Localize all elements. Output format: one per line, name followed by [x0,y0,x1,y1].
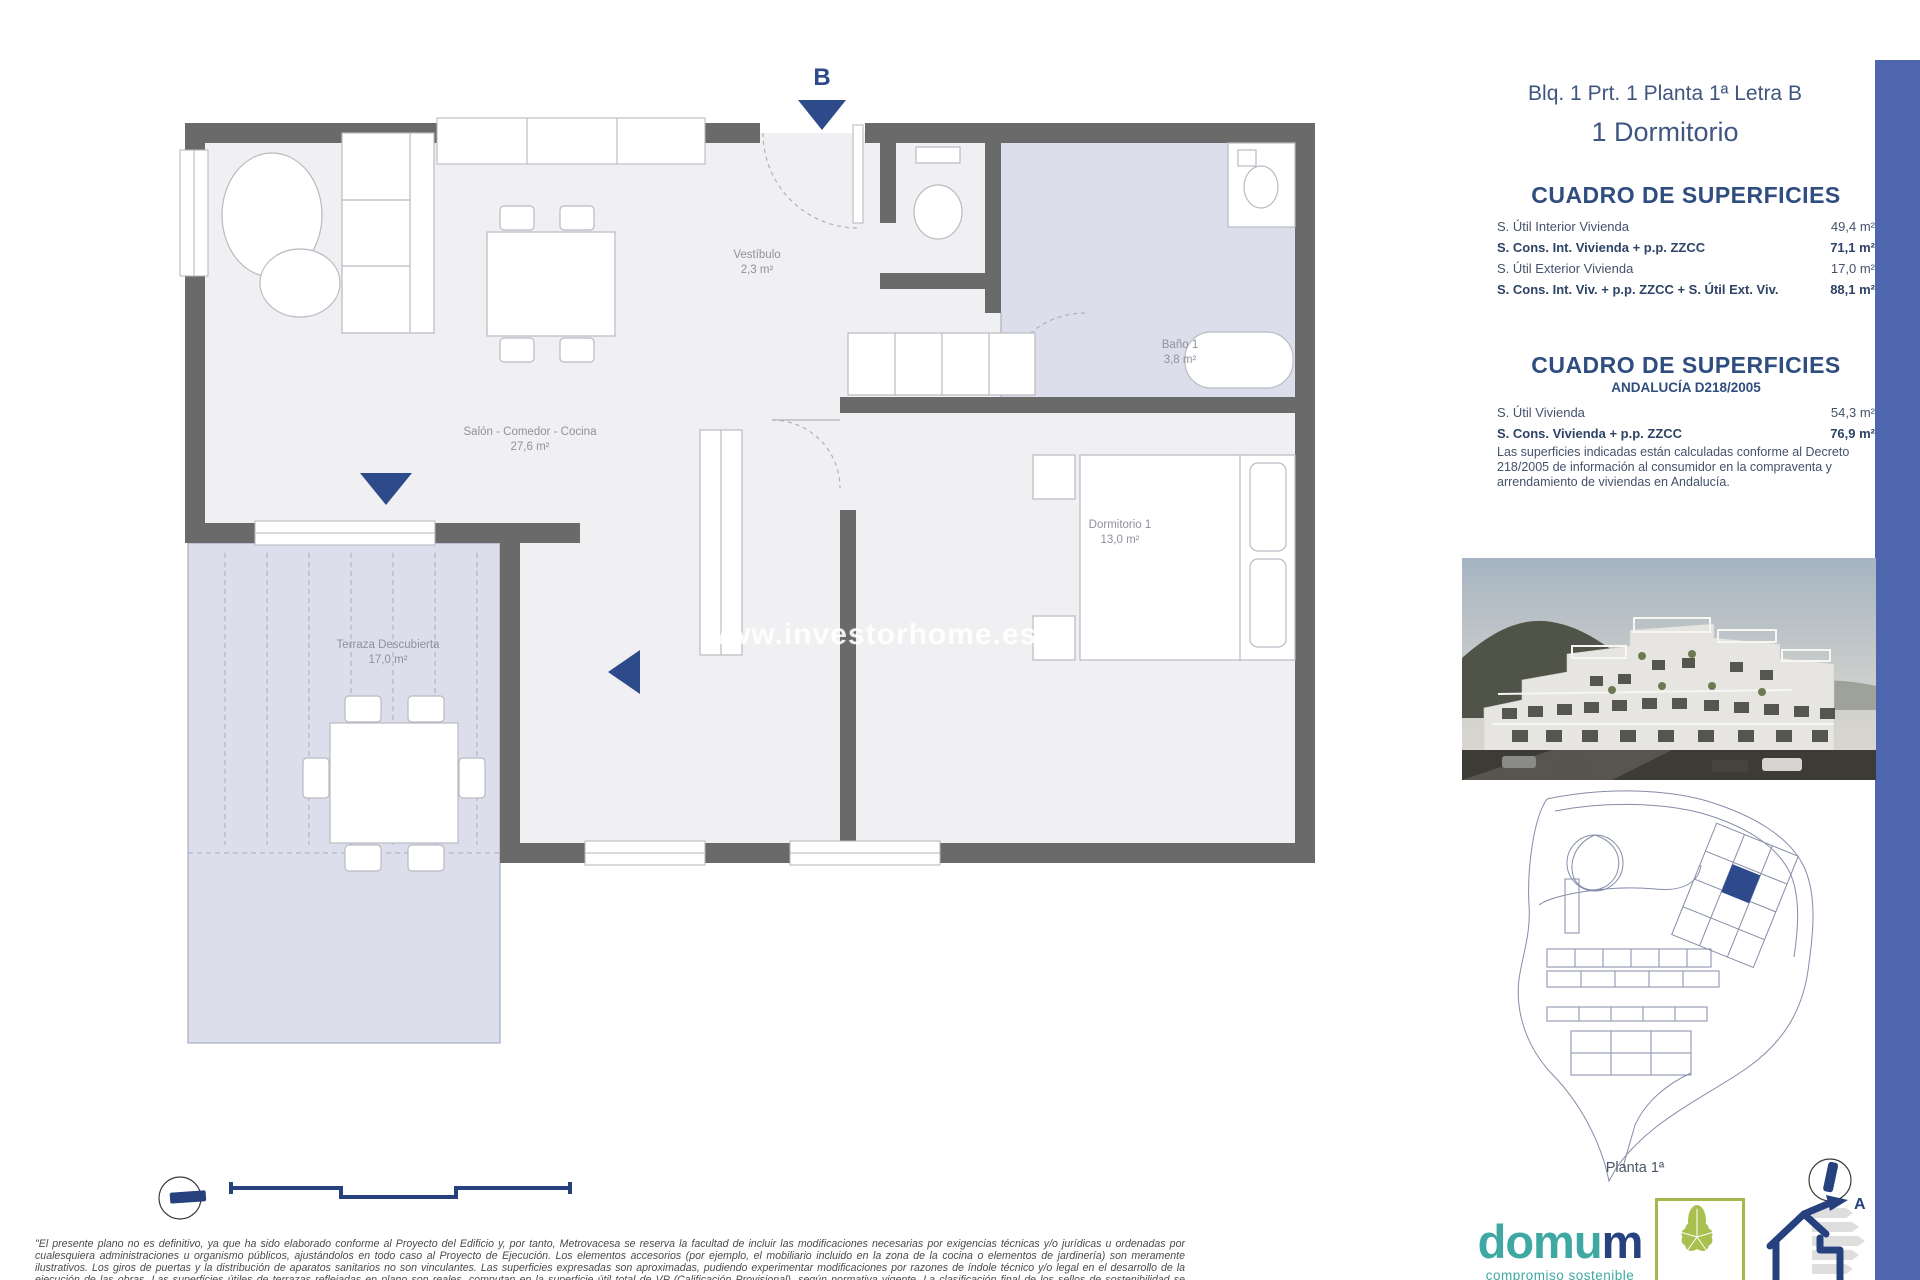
unit-reference: Blq. 1 Prt. 1 Planta 1ª Letra B [1450,82,1880,106]
room-area: 27,6 m² [430,440,630,455]
row-label: S. Útil Exterior Vivienda [1497,261,1633,276]
domum-tagline: compromiso sostenible [1465,1268,1655,1280]
floor-plan-drawing [0,0,1360,1100]
table-row: S. Útil Exterior Vivienda 17,0 m² [1497,261,1875,276]
room-label-terraza: Terraza Descubierta 17,0 m² [288,638,488,668]
room-area: 17,0 m² [288,653,488,668]
row-value: 76,9 m² [1830,426,1875,441]
surfaces-table-2: CUADRO DE SUPERFICIES ANDALUCÍA D218/200… [1497,352,1875,490]
plan-sheet-page: B Salón - Comedor - Cocina 27,6 m² Vestí… [0,0,1920,1280]
row-value: 88,1 m² [1830,282,1875,297]
surfaces-table-2-title: CUADRO DE SUPERFICIES [1497,352,1875,379]
domum-logo: domum compromiso sostenible [1465,1218,1655,1280]
room-label-bano: Baño 1 3,8 m² [1130,338,1230,368]
room-area: 2,3 m² [707,263,807,278]
room-name: Salón - Comedor - Cocina [430,425,630,440]
room-name: Baño 1 [1130,338,1230,353]
table-row: S. Cons. Int. Vivienda + p.p. ZZCC 71,1 … [1497,240,1875,255]
verde-sustainability-badge: VERDE [1655,1198,1745,1280]
domum-logo-text: domu [1478,1215,1602,1268]
row-label: S. Cons. Int. Viv. + p.p. ZZCC + S. Útil… [1497,282,1778,297]
site-plan-drawing [1495,785,1880,1185]
watermark: www.investorhome.es [630,618,1110,652]
room-name: Dormitorio 1 [1045,518,1195,533]
row-label: S. Útil Vivienda [1497,405,1585,420]
row-label: S. Cons. Vivienda + p.p. ZZCC [1497,426,1682,441]
verde-leaf-icon [1658,1201,1736,1273]
energy-rating-house-icon: A [1752,1192,1870,1280]
unit-type: 1 Dormitorio [1450,117,1880,148]
energy-letter: A [1854,1196,1866,1213]
row-value: 49,4 m² [1831,219,1875,234]
blue-side-bar [1875,60,1920,1280]
room-label-dormitorio: Dormitorio 1 13,0 m² [1045,518,1195,548]
footer-disclaimer: "El presente plano no es definitivo, ya … [35,1238,1185,1280]
table-row: S. Cons. Int. Viv. + p.p. ZZCC + S. Útil… [1497,282,1875,297]
surfaces-table-1-title: CUADRO DE SUPERFICIES [1497,182,1875,209]
row-label: S. Útil Interior Vivienda [1497,219,1629,234]
room-area: 13,0 m² [1045,533,1195,548]
graphic-scale-bar [228,1180,573,1208]
row-value: 17,0 m² [1831,261,1875,276]
unit-header: Blq. 1 Prt. 1 Planta 1ª Letra B 1 Dormit… [1450,82,1880,148]
decree-note: Las superficies indicadas están calculad… [1497,445,1875,490]
building-render-image [1462,558,1876,780]
room-label-salon: Salón - Comedor - Cocina 27,6 m² [430,425,630,455]
row-value: 54,3 m² [1831,405,1875,420]
table-row: S. Útil Interior Vivienda 49,4 m² [1497,219,1875,234]
room-name: Terraza Descubierta [288,638,488,653]
site-plan-caption: Planta 1ª [1560,1160,1710,1176]
table-row: S. Útil Vivienda 54,3 m² [1497,405,1875,420]
surfaces-table-1: CUADRO DE SUPERFICIES S. Útil Interior V… [1497,182,1875,297]
table-row: S. Cons. Vivienda + p.p. ZZCC 76,9 m² [1497,426,1875,441]
domum-logo-text-m: m [1602,1215,1643,1268]
highlighted-unit [1721,864,1760,903]
row-value: 71,1 m² [1830,240,1875,255]
room-area: 3,8 m² [1130,353,1230,368]
room-name: Vestíbulo [707,248,807,263]
section-marker-b-label: B [796,64,848,92]
row-label: S. Cons. Int. Vivienda + p.p. ZZCC [1497,240,1705,255]
surfaces-table-2-subtitle: ANDALUCÍA D218/2005 [1497,380,1875,395]
room-label-vestibulo: Vestíbulo 2,3 m² [707,248,807,278]
orientation-icon [150,1170,220,1230]
